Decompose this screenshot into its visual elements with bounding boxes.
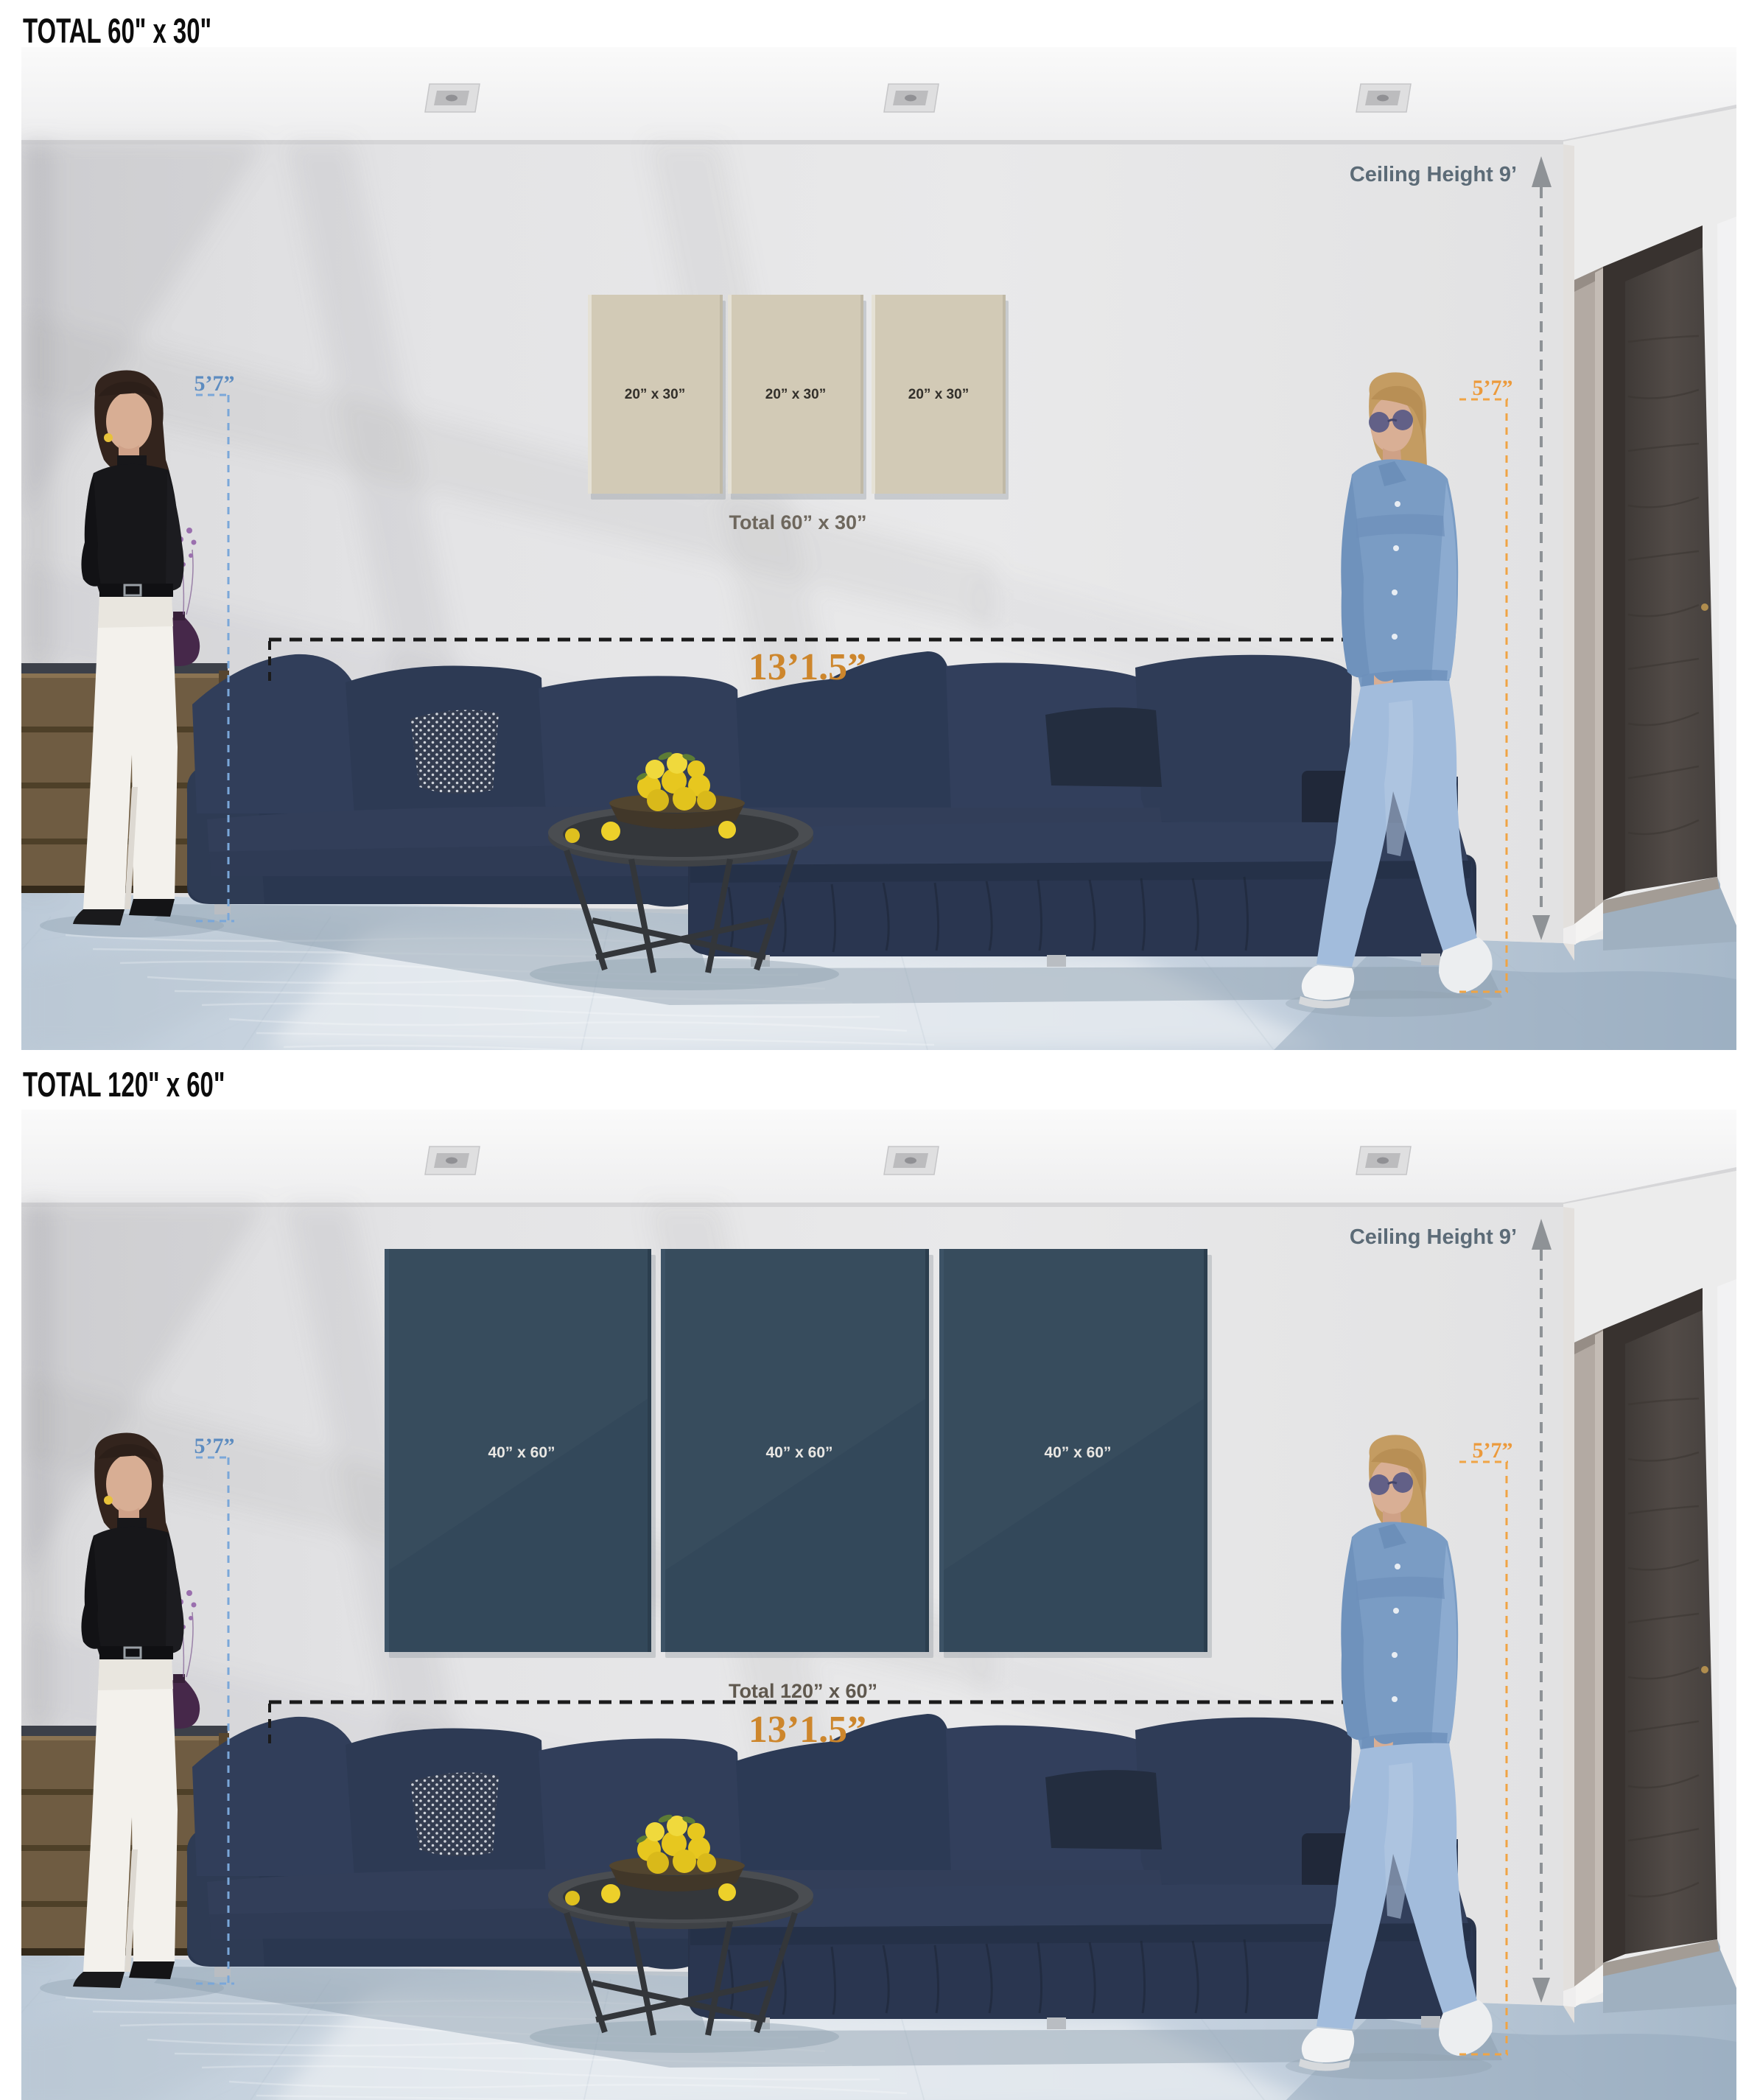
svg-text:20” x 30”: 20” x 30”: [765, 387, 826, 402]
svg-text:13’1.5”: 13’1.5”: [748, 1709, 866, 1751]
svg-text:20” x 30”: 20” x 30”: [625, 387, 685, 402]
svg-text:20” x 30”: 20” x 30”: [908, 387, 969, 402]
svg-text:5’7”: 5’7”: [194, 371, 235, 396]
svg-text:40” x 60”: 40” x 60”: [488, 1444, 555, 1461]
svg-text:Total 120” x 60”: Total 120” x 60”: [729, 1680, 877, 1702]
svg-text:Total 60” x 30”: Total 60” x 30”: [729, 511, 866, 533]
svg-text:40” x 60”: 40” x 60”: [765, 1444, 832, 1461]
svg-text:5’7”: 5’7”: [1473, 1438, 1513, 1463]
svg-text:5’7”: 5’7”: [1473, 376, 1513, 400]
svg-text:40” x 60”: 40” x 60”: [1044, 1444, 1111, 1461]
svg-text:5’7”: 5’7”: [194, 1434, 235, 1458]
svg-text:Ceiling Height 9’: Ceiling Height 9’: [1350, 163, 1517, 186]
svg-text:13’1.5”: 13’1.5”: [748, 646, 866, 688]
svg-text:Ceiling Height 9’: Ceiling Height 9’: [1350, 1225, 1517, 1249]
